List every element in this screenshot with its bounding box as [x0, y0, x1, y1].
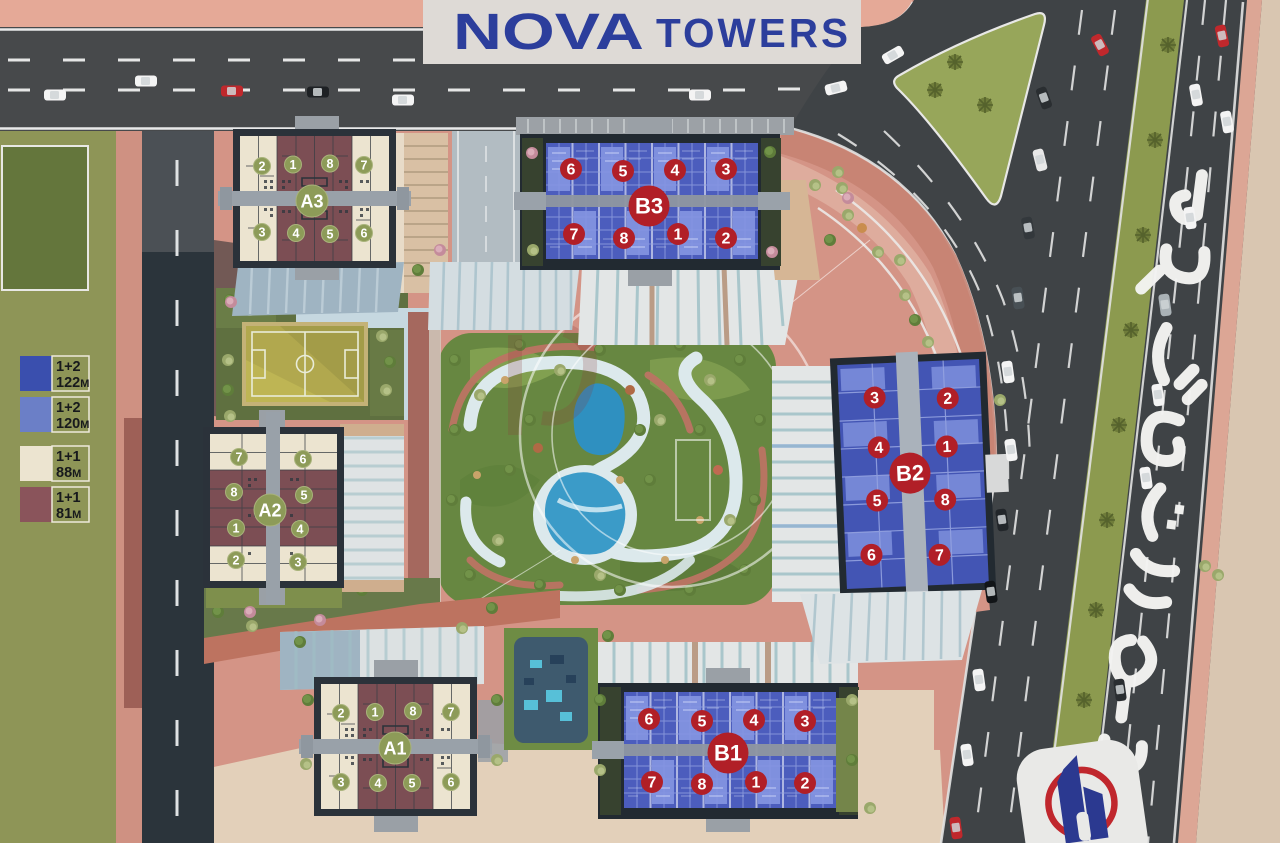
svg-text:7: 7	[648, 775, 657, 792]
svg-text:5: 5	[872, 493, 882, 510]
svg-text:5: 5	[301, 489, 308, 503]
svg-text:B2: B2	[895, 460, 924, 486]
svg-text:5: 5	[619, 164, 628, 181]
svg-text:A2: A2	[258, 501, 281, 521]
svg-text:5: 5	[698, 714, 707, 731]
svg-text:7: 7	[935, 547, 945, 564]
svg-text:3: 3	[870, 390, 880, 407]
svg-text:1: 1	[674, 227, 683, 244]
svg-text:2: 2	[259, 160, 266, 174]
svg-text:1+2: 1+2	[56, 400, 81, 416]
svg-text:8: 8	[698, 777, 707, 794]
svg-text:A1: A1	[383, 739, 406, 759]
svg-text:1+1: 1+1	[56, 449, 81, 465]
svg-text:2: 2	[722, 231, 731, 248]
svg-text:2: 2	[338, 707, 345, 721]
svg-text:6: 6	[645, 712, 654, 729]
svg-text:3: 3	[259, 226, 266, 240]
svg-text:4: 4	[375, 777, 382, 791]
svg-text:3: 3	[722, 162, 731, 179]
svg-text:1: 1	[752, 775, 761, 792]
svg-text:7: 7	[361, 159, 368, 173]
svg-text:3: 3	[295, 556, 302, 570]
svg-text:5: 5	[409, 777, 416, 791]
svg-text:2: 2	[801, 776, 810, 793]
svg-text:8: 8	[231, 486, 238, 500]
svg-text:88M: 88M	[56, 465, 81, 481]
svg-text:4: 4	[293, 227, 300, 241]
svg-text:B3: B3	[635, 194, 663, 219]
svg-text:1: 1	[290, 158, 297, 172]
svg-text:A3: A3	[300, 192, 323, 212]
svg-text:6: 6	[567, 162, 576, 179]
svg-text:4: 4	[750, 713, 759, 730]
svg-text:8: 8	[620, 231, 629, 248]
svg-text:8: 8	[410, 705, 417, 719]
svg-text:2: 2	[233, 554, 240, 568]
svg-text:7: 7	[570, 227, 579, 244]
svg-text:1+1: 1+1	[56, 490, 81, 506]
svg-text:81M: 81M	[56, 506, 81, 522]
svg-text:5: 5	[327, 228, 334, 242]
svg-text:4: 4	[297, 523, 304, 537]
svg-text:1: 1	[372, 706, 379, 720]
svg-text:NOVA: NOVA	[453, 3, 644, 60]
svg-text:1: 1	[233, 522, 240, 536]
svg-text:8: 8	[940, 492, 950, 509]
svg-text:3: 3	[801, 714, 810, 731]
svg-text:120M: 120M	[56, 416, 89, 432]
svg-text:6: 6	[867, 547, 877, 564]
svg-text:6: 6	[300, 453, 307, 467]
svg-text:4: 4	[671, 163, 680, 180]
svg-text:3: 3	[338, 776, 345, 790]
svg-text:6: 6	[361, 227, 368, 241]
svg-text:122M: 122M	[56, 375, 89, 391]
svg-text:8: 8	[327, 157, 334, 171]
svg-text:1: 1	[942, 439, 952, 456]
svg-text:1+2: 1+2	[56, 359, 81, 375]
svg-text:7: 7	[236, 451, 243, 465]
svg-text:B1: B1	[714, 741, 742, 766]
svg-text:4: 4	[874, 440, 884, 457]
svg-text:TOWERS: TOWERS	[656, 10, 851, 56]
svg-text:6: 6	[448, 776, 455, 790]
svg-text:7: 7	[448, 706, 455, 720]
svg-text:2: 2	[943, 391, 953, 408]
